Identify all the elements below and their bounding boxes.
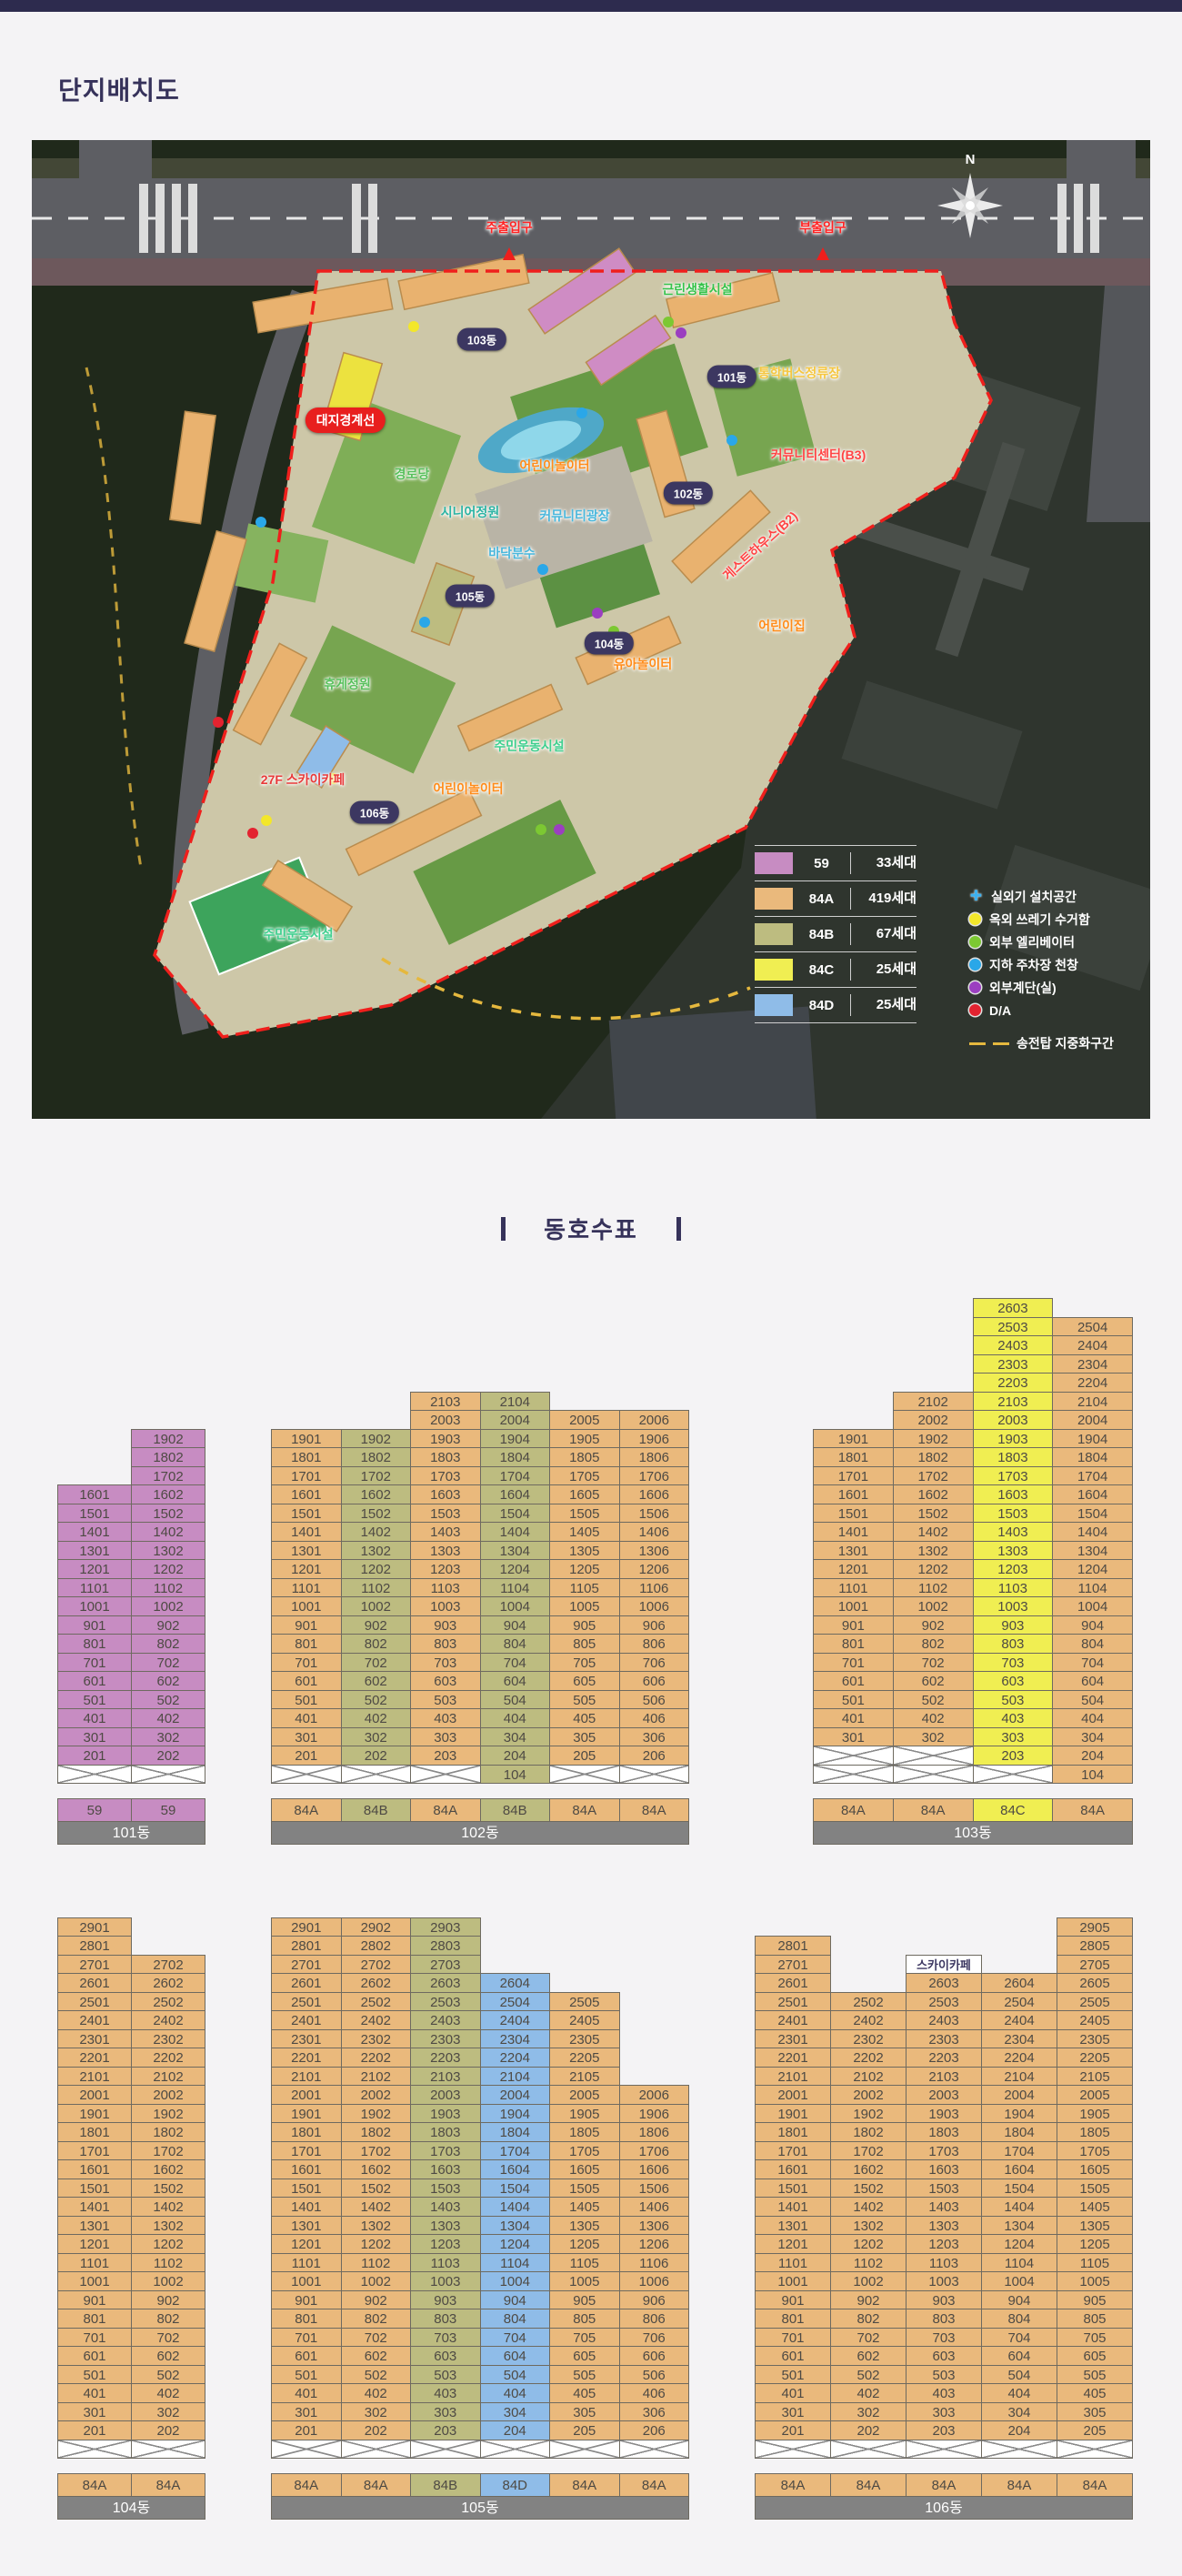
unit-cell — [619, 1765, 690, 1785]
legend-symbol-label: D/A — [989, 1003, 1011, 1018]
unit-cell — [619, 1992, 690, 2012]
unit-type-count: 25세대 — [850, 959, 917, 981]
unit-cell: 1403 — [410, 1522, 481, 1542]
unit-type-cell: 84A — [341, 2473, 412, 2497]
unit-cell: 2901 — [57, 1917, 132, 1937]
unit-cell: 1304 — [480, 1541, 551, 1561]
unit-cell: 801 — [57, 2309, 132, 2329]
map-label: 통학버스정류장 — [758, 364, 840, 382]
unit-cell: 1604 — [480, 2159, 551, 2179]
legend-unit-type-row: 5933세대 — [755, 845, 917, 881]
unit-cell — [549, 1392, 620, 1412]
unit-cell: 2603 — [410, 1973, 481, 1993]
floor-row: 12011202 — [57, 2234, 205, 2254]
unit-cell — [813, 1392, 894, 1412]
floor-row: 401402403404405406 — [271, 1708, 689, 1728]
unit-cell: 1806 — [619, 1447, 690, 1467]
unit-cell: 1504 — [480, 2179, 551, 2199]
unit-cell: 1701 — [755, 2141, 831, 2161]
unit-cell — [893, 1373, 974, 1393]
unit-cell: 1601 — [813, 1484, 894, 1504]
unit-cell: 2604 — [480, 1973, 551, 1993]
unit-cell — [893, 1298, 974, 1318]
floor-row: 2801 — [57, 1936, 205, 1956]
unit-cell: 2003 — [906, 2085, 982, 2105]
unit-cell: 1101 — [755, 2253, 831, 2273]
unit-cell: 402 — [341, 1708, 412, 1728]
unit-type-cell: 59 — [57, 1798, 132, 1822]
unit-cell: 1002 — [341, 2271, 412, 2291]
building-badge: 104동 — [585, 632, 634, 655]
unit-cell: 1405 — [1057, 2197, 1133, 2217]
floor-row: 100110021003100410051006 — [271, 1596, 689, 1616]
unit-cell: 202 — [341, 2420, 412, 2440]
unit-cell: 1602 — [131, 2159, 205, 2179]
floor-row: 1902 — [57, 1429, 205, 1449]
unit-cell: 1001 — [271, 2271, 342, 2291]
floor-row: 401402403404405 — [755, 2383, 1133, 2403]
unit-cell: 1902 — [131, 2104, 205, 2124]
floor-row: 201202 — [57, 1746, 205, 1766]
unit-cell — [271, 2440, 342, 2460]
unit-cell: 606 — [619, 1671, 690, 1691]
unit-cell: 2204 — [981, 2048, 1057, 2068]
floor-row: 15011502 — [57, 2179, 205, 2199]
unit-cell: 2004 — [981, 2085, 1057, 2105]
unit-cell: 401 — [813, 1708, 894, 1728]
unit-cell: 705 — [549, 1653, 620, 1673]
unit-cell — [549, 1973, 620, 1993]
floor-row: 11011102110311041105 — [755, 2253, 1133, 2273]
unit-cell: 1201 — [813, 1559, 894, 1579]
unit-cell: 502 — [131, 2365, 205, 2385]
floor-row: 23012302230323042305 — [271, 2029, 689, 2049]
building-table-106동: 2905280128052701스카이카페2705260126032604260… — [755, 1917, 1133, 2521]
dash-icon — [969, 1042, 986, 1045]
unit-cell: 2103 — [410, 1392, 481, 1412]
unit-cell: 504 — [981, 2365, 1057, 2385]
unit-cell — [57, 1447, 132, 1467]
unit-cell: 704 — [1052, 1653, 1133, 1673]
floor-row: 901902903904905 — [755, 2290, 1133, 2310]
unit-cell: 404 — [480, 1708, 551, 1728]
unit-cell: 403 — [410, 1708, 481, 1728]
unit-tables-row-2: 2901280127012702260126022501250224012402… — [0, 1890, 1182, 2520]
title-bar-left — [501, 1217, 506, 1241]
unit-type-count: 419세대 — [850, 888, 917, 910]
floor-row: 301302303304 — [813, 1727, 1133, 1747]
unit-cell: 1704 — [981, 2141, 1057, 2161]
unit-cell: 2401 — [57, 2010, 132, 2030]
floor-row: 401402 — [57, 2383, 205, 2403]
table-gap — [57, 2459, 205, 2473]
map-label: 커뮤니티광장 — [539, 507, 609, 525]
floor-row: 23012302230323042305 — [755, 2029, 1133, 2049]
legend-unit-type-row: 84B67세대 — [755, 917, 917, 952]
unit-cell: 401 — [57, 1708, 132, 1728]
unit-cell: 802 — [341, 2309, 412, 2329]
unit-cell: 2204 — [1052, 1373, 1133, 1393]
unit-cell: 205 — [549, 2420, 620, 2440]
unit-cell: 2705 — [1057, 1955, 1133, 1975]
unit-cell: 1603 — [973, 1484, 1054, 1504]
unit-cell: 904 — [1052, 1615, 1133, 1635]
floor-row: 1501150215031504 — [813, 1504, 1133, 1524]
unit-cell: 301 — [271, 1727, 342, 1747]
unit-cell: 1401 — [57, 2197, 132, 2217]
unit-cell: 406 — [619, 1708, 690, 1728]
unit-cell — [893, 1746, 974, 1766]
floor-row: 200220032004 — [813, 1410, 1133, 1430]
unit-cell: 1403 — [410, 2197, 481, 2217]
floor-row: 801802803804 — [813, 1634, 1133, 1654]
unit-cell: 604 — [1052, 1671, 1133, 1691]
floor-row: 901902903904905906 — [271, 2290, 689, 2310]
unit-cell: 1904 — [981, 2104, 1057, 2124]
floor-row: 801802 — [57, 2309, 205, 2329]
unit-cell: 1104 — [1052, 1578, 1133, 1598]
unit-cell: 806 — [619, 2309, 690, 2329]
unit-type-row: 84A84A84A84A84A — [755, 2473, 1133, 2497]
unit-cell: 905 — [549, 1615, 620, 1635]
floor-row: 1801180218031804 — [813, 1447, 1133, 1467]
unit-cell: 1404 — [480, 1522, 551, 1542]
unit-cell: 1503 — [973, 1504, 1054, 1524]
floor-row: 19011902190319041905 — [755, 2104, 1133, 2124]
unit-cell: 1901 — [755, 2104, 831, 2124]
unit-cell: 1303 — [973, 1541, 1054, 1561]
building-badge: 102동 — [664, 482, 713, 505]
unit-cell: 1505 — [1057, 2179, 1133, 2199]
unit-cell: 2005 — [1057, 2085, 1133, 2105]
unit-cell: 1905 — [549, 1429, 620, 1449]
unit-cell: 1102 — [830, 2253, 907, 2273]
unit-type-row: 84A84A — [57, 2473, 205, 2497]
table-gap — [755, 2459, 1133, 2473]
unit-cell: 1505 — [549, 1504, 620, 1524]
unit-cell: 505 — [549, 1690, 620, 1710]
unit-cell: 1201 — [57, 1559, 132, 1579]
unit-cell: 304 — [480, 2402, 551, 2422]
building-badge: 105동 — [446, 585, 495, 608]
unit-cell: 1801 — [755, 2122, 831, 2142]
unit-cell: 1803 — [410, 2122, 481, 2142]
unit-cell: 1902 — [830, 2104, 907, 2124]
unit-cell: 601 — [57, 1671, 132, 1691]
unit-cell — [1052, 1298, 1133, 1318]
unit-cell: 2002 — [131, 2085, 205, 2105]
unit-cell: 1402 — [341, 2197, 412, 2217]
unit-cell: 2404 — [981, 2010, 1057, 2030]
unit-cell: 604 — [981, 2346, 1057, 2366]
legend-symbol-row: 옥외 쓰레기 수거함 — [969, 908, 1114, 931]
unit-cell: 1405 — [549, 1522, 620, 1542]
unit-cell: 1302 — [893, 1541, 974, 1561]
floor-row: 203204 — [813, 1746, 1133, 1766]
unit-cell — [813, 1373, 894, 1393]
unit-cell: 701 — [813, 1653, 894, 1673]
unit-cell: 1203 — [410, 1559, 481, 1579]
legend-unit-type-row: 84D25세대 — [755, 988, 917, 1023]
unit-cell: 201 — [57, 2420, 132, 2440]
unit-type-cell: 84B — [410, 2473, 481, 2497]
unit-type-swatch — [755, 959, 793, 981]
unit-cell: 1606 — [619, 1484, 690, 1504]
unit-cell: 1602 — [341, 2159, 412, 2179]
floor-row: 801802803804805 — [755, 2309, 1133, 2329]
unit-cell: 2304 — [480, 2029, 551, 2049]
unit-cell: 1302 — [131, 2216, 205, 2236]
unit-cell: 601 — [57, 2346, 132, 2366]
floor-row: 21032104 — [271, 1392, 689, 1412]
unit-type-swatch — [755, 923, 793, 945]
floor-row: 26012602 — [57, 1973, 205, 1993]
unit-cell: 1305 — [1057, 2216, 1133, 2236]
unit-cell — [1057, 2440, 1133, 2460]
unit-cell: 1202 — [341, 1559, 412, 1579]
unit-type-cell: 84A — [549, 1798, 620, 1822]
floor-row: 22032204 — [813, 1373, 1133, 1393]
floor-row: 401402 — [57, 1708, 205, 1728]
unit-cell: 2005 — [549, 2085, 620, 2105]
unit-cell: 2505 — [1057, 1992, 1133, 2012]
unit-cell: 1604 — [1052, 1484, 1133, 1504]
floor-row: 22012202 — [57, 2048, 205, 2068]
unit-cell: 1601 — [57, 1484, 132, 1504]
unit-cell: 1703 — [906, 2141, 982, 2161]
unit-cell: 604 — [480, 1671, 551, 1691]
unit-cell — [973, 1765, 1054, 1785]
floor-row: 301302303304305306 — [271, 2402, 689, 2422]
unit-cell: 2001 — [271, 2085, 342, 2105]
floor-row: 14011402 — [57, 1522, 205, 1542]
unit-cell: 1202 — [830, 2234, 907, 2254]
unit-cell: 1306 — [619, 2216, 690, 2236]
building-table-104동: 2901280127012702260126022501250224012402… — [57, 1917, 205, 2521]
unit-type-cell: 84A — [410, 1798, 481, 1822]
unit-cell — [619, 2029, 690, 2049]
legend-symbol-label: 지하 주차장 천창 — [989, 956, 1078, 974]
unit-cell — [755, 2440, 831, 2460]
unit-type-cell: 84A — [1052, 1798, 1133, 1822]
unit-cell: 1504 — [981, 2179, 1057, 2199]
unit-cell: 1803 — [410, 1447, 481, 1467]
unit-cell: 1003 — [973, 1596, 1054, 1616]
unit-cell: 903 — [906, 2290, 982, 2310]
compass-north-label: N — [966, 152, 976, 167]
unit-cell: 1402 — [131, 2197, 205, 2217]
floor-row: 17011702170317041705 — [755, 2141, 1133, 2161]
unit-cell: 1804 — [480, 1447, 551, 1467]
unit-cell: 906 — [619, 2290, 690, 2310]
unit-cell: 404 — [1052, 1708, 1133, 1728]
floor-row: 104 — [813, 1765, 1133, 1785]
unit-cell: 602 — [341, 2346, 412, 2366]
unit-cell: 1404 — [1052, 1522, 1133, 1542]
floor-row: 1401140214031404 — [813, 1522, 1133, 1542]
unit-cell: 201 — [271, 1746, 342, 1766]
map-label: 주민운동시설 — [263, 925, 333, 943]
unit-type-label: 59 — [800, 856, 843, 871]
floor-row: 1802 — [57, 1447, 205, 1467]
unit-cell: 706 — [619, 2328, 690, 2348]
unit-cell: 2103 — [906, 2067, 982, 2087]
unit-cell: 1304 — [1052, 1541, 1133, 1561]
legend-powerline-row: 송전탑 지중화구간 — [969, 1034, 1114, 1052]
floor-row: 290129022903 — [271, 1917, 689, 1937]
unit-cell — [830, 1936, 907, 1956]
unit-cell: 1806 — [619, 2122, 690, 2142]
unit-cell: 2903 — [410, 1917, 481, 1937]
unit-cell: 1103 — [410, 2253, 481, 2273]
unit-cell: 301 — [813, 1727, 894, 1747]
unit-cell: 1805 — [549, 2122, 620, 2142]
unit-cell: 1901 — [57, 2104, 132, 2124]
table-gap — [813, 1784, 1133, 1798]
unit-cell — [549, 1917, 620, 1937]
unit-cell: 403 — [973, 1708, 1054, 1728]
unit-cell: 406 — [619, 2383, 690, 2403]
unit-cell — [131, 2440, 205, 2460]
floor-row: 100110021003100410051006 — [271, 2271, 689, 2291]
unit-type-swatch — [755, 994, 793, 1016]
floor-row: 190119021903190419051906 — [271, 1429, 689, 1449]
unit-cell: 2303 — [410, 2029, 481, 2049]
dash-icon — [993, 1042, 1009, 1045]
unit-cell — [893, 1765, 974, 1785]
unit-cell: 2101 — [57, 2067, 132, 2087]
unit-cell: 303 — [906, 2402, 982, 2422]
unit-cell: 1004 — [981, 2271, 1057, 2291]
unit-cell: 1203 — [973, 1559, 1054, 1579]
unit-cell: 902 — [893, 1615, 974, 1635]
unit-cell: 205 — [549, 1746, 620, 1766]
unit-cell: 2405 — [1057, 2010, 1133, 2030]
floor-row: 21012102210321042105 — [271, 2067, 689, 2087]
unit-cell: 1204 — [1052, 1559, 1133, 1579]
floor-row: 13011302130313041305 — [755, 2216, 1133, 2236]
floor-row: 2701스카이카페2705 — [755, 1955, 1133, 1975]
section-title-unit-table: 동호수표 — [0, 1212, 1182, 1245]
unit-cell: 1202 — [131, 2234, 205, 2254]
unit-cell: 2503 — [410, 1992, 481, 2012]
map-label: 27F 스카이카페 — [261, 770, 345, 789]
sky-cafe-cell: 스카이카페 — [906, 1955, 982, 1975]
floor-row: 20012002200320042005 — [755, 2085, 1133, 2105]
unit-cell: 2205 — [1057, 2048, 1133, 2068]
unit-cell: 702 — [893, 1653, 974, 1673]
unit-cell: 2505 — [549, 1992, 620, 2012]
unit-cell: 2304 — [1052, 1354, 1133, 1374]
floor-row: 270127022703 — [271, 1955, 689, 1975]
floor-row: 301302 — [57, 1727, 205, 1747]
unit-cell — [341, 1410, 412, 1430]
building-name-bar: 106동 — [755, 2496, 1133, 2520]
unit-cell: 1803 — [906, 2122, 982, 2142]
legend-symbol-label: 외부 엘리베이터 — [989, 933, 1075, 951]
floor-row: 1101110211031104 — [813, 1578, 1133, 1598]
unit-cell: 304 — [1052, 1727, 1133, 1747]
building-table-103동: 2603250325042403240423032304220322042102… — [813, 1298, 1133, 1845]
facility-dot-icon — [969, 1004, 981, 1016]
unit-cell: 1105 — [549, 2253, 620, 2273]
unit-cell: 1002 — [830, 2271, 907, 2291]
unit-cell: 2204 — [480, 2048, 551, 2068]
unit-cell: 702 — [131, 2328, 205, 2348]
page-title: 단지배치도 — [58, 71, 180, 107]
legend-symbol-row: 외부 엘리베이터 — [969, 931, 1114, 953]
floor-row: 301302303304305306 — [271, 1727, 689, 1747]
unit-cell — [981, 1917, 1057, 1937]
unit-cell: 1501 — [813, 1504, 894, 1524]
unit-cell: 2402 — [341, 2010, 412, 2030]
unit-type-cell: 84A — [271, 1798, 342, 1822]
unit-cell: 201 — [57, 1746, 132, 1766]
unit-cell: 205 — [1057, 2420, 1133, 2440]
unit-cell: 1905 — [549, 2104, 620, 2124]
floor-row: 10011002100310041005 — [755, 2271, 1133, 2291]
unit-cell: 1902 — [341, 2104, 412, 2124]
legend-symbol-row: 지하 주차장 천창 — [969, 953, 1114, 976]
map-label: 시니어정원 — [441, 503, 499, 521]
unit-cell: 1503 — [410, 1504, 481, 1524]
unit-cell: 706 — [619, 1653, 690, 1673]
unit-cell: 505 — [549, 2365, 620, 2385]
floor-row: 501502 — [57, 1690, 205, 1710]
unit-cell — [813, 1298, 894, 1318]
unit-cell: 1301 — [271, 2216, 342, 2236]
unit-cell — [755, 1917, 831, 1937]
facility-dot-icon — [969, 981, 981, 993]
unit-cell: 2403 — [973, 1335, 1054, 1355]
floor-row: 23012302 — [57, 2029, 205, 2049]
unit-cell — [549, 1936, 620, 1956]
unit-cell — [619, 1917, 690, 1937]
unit-cell: 1106 — [619, 2253, 690, 2273]
unit-type-cell: 84A — [906, 2473, 982, 2497]
unit-cell — [131, 1917, 205, 1937]
unit-cell: 2702 — [341, 1955, 412, 1975]
unit-cell: 305 — [549, 2402, 620, 2422]
unit-cell: 404 — [480, 2383, 551, 2403]
floor-row: 601602603604605606 — [271, 1671, 689, 1691]
unit-cell: 705 — [549, 2328, 620, 2348]
unit-cell: 1101 — [271, 2253, 342, 2273]
floor-row: 210221032104 — [813, 1392, 1133, 1412]
unit-cell: 1001 — [57, 2271, 132, 2291]
unit-cell — [830, 1973, 907, 1993]
floor-row: 701702703704705706 — [271, 1653, 689, 1673]
floor-row: 2003200420052006 — [271, 1410, 689, 1430]
unit-cell: 1404 — [480, 2197, 551, 2217]
unit-cell — [813, 1335, 894, 1355]
unit-cell: 1401 — [271, 1522, 342, 1542]
unit-cell: 2201 — [755, 2048, 831, 2068]
unit-cell: 1301 — [813, 1541, 894, 1561]
unit-cell: 1303 — [410, 1541, 481, 1561]
unit-cell: 1301 — [57, 1541, 132, 1561]
floor-row: 1901190219031904 — [813, 1429, 1133, 1449]
unit-cell: 903 — [973, 1615, 1054, 1635]
unit-cell: 2905 — [1057, 1917, 1133, 1937]
unit-cell — [480, 1955, 551, 1975]
unit-cell — [981, 1955, 1057, 1975]
unit-cell: 1702 — [131, 2141, 205, 2161]
legend-symbol-row: D/A — [969, 999, 1114, 1021]
unit-type-cell: 84C — [973, 1798, 1054, 1822]
unit-cell: 301 — [271, 2402, 342, 2422]
floor-row: 601602 — [57, 1671, 205, 1691]
